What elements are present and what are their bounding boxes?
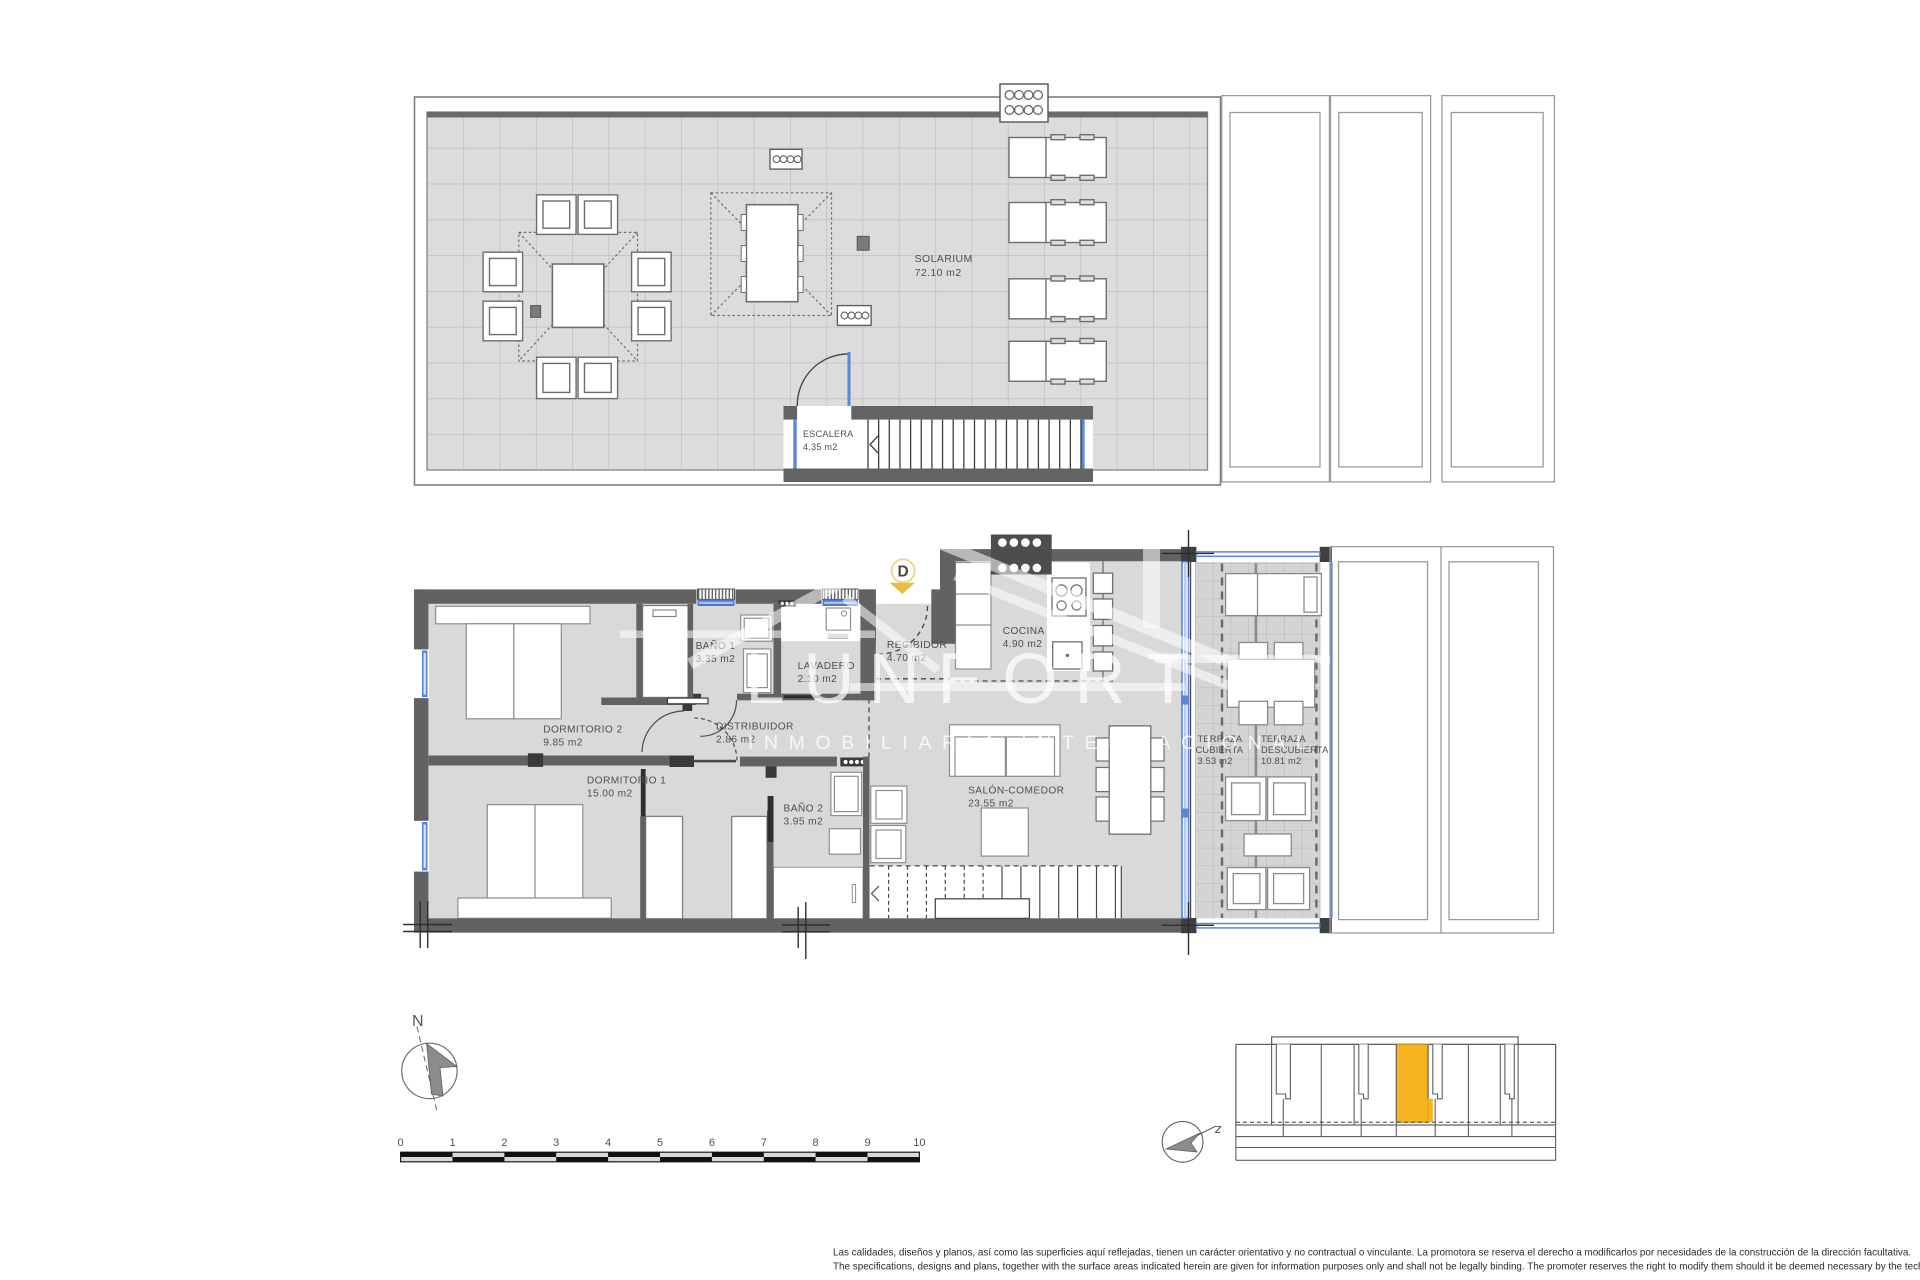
svg-text:DORMITORIO 2: DORMITORIO 2 <box>543 725 622 736</box>
svg-text:5: 5 <box>657 1137 663 1149</box>
svg-text:4: 4 <box>605 1137 611 1149</box>
svg-text:COCINA: COCINA <box>1003 626 1045 637</box>
svg-text:SALÓN-COMEDOR: SALÓN-COMEDOR <box>968 784 1064 797</box>
svg-text:U: U <box>803 640 854 719</box>
svg-text:D: D <box>897 563 908 580</box>
svg-text:2: 2 <box>501 1137 507 1149</box>
svg-text:23.55 m2: 23.55 m2 <box>968 799 1014 810</box>
svg-text:DORMITORIO 1: DORMITORIO 1 <box>587 776 666 787</box>
svg-text:R: R <box>1074 640 1125 719</box>
svg-text:72.10 m2: 72.10 m2 <box>915 267 962 279</box>
svg-text:7: 7 <box>761 1137 767 1149</box>
svg-text:z: z <box>1214 1121 1222 1136</box>
svg-text:T: T <box>1146 640 1189 719</box>
svg-text:O: O <box>1002 640 1057 719</box>
svg-text:9.85 m2: 9.85 m2 <box>543 738 583 749</box>
svg-text:0: 0 <box>398 1137 404 1149</box>
svg-text:4.35 m2: 4.35 m2 <box>803 442 838 452</box>
svg-text:9: 9 <box>864 1137 870 1149</box>
svg-text:L: L <box>745 640 785 719</box>
svg-text:BAÑO 2: BAÑO 2 <box>784 802 824 815</box>
svg-text:N: N <box>868 640 919 719</box>
svg-text:3: 3 <box>553 1137 559 1149</box>
svg-text:6: 6 <box>709 1137 715 1149</box>
svg-text:8: 8 <box>813 1137 819 1149</box>
svg-text:The specifications, designs an: The specifications, designs and plans, t… <box>833 1262 1920 1273</box>
svg-text:ESCALERA: ESCALERA <box>803 429 853 439</box>
svg-text:INMOBILIARIA INTERNACIONAL: INMOBILIARIA INTERNACIONAL <box>748 732 1317 754</box>
svg-text:10.81 m2: 10.81 m2 <box>1261 756 1301 766</box>
svg-text:SOLARIUM: SOLARIUM <box>915 253 973 265</box>
svg-text:1: 1 <box>449 1137 455 1149</box>
svg-text:10: 10 <box>913 1137 925 1149</box>
svg-text:3.53 m2: 3.53 m2 <box>1198 756 1233 766</box>
svg-text:Las calidades, diseños y plano: Las calidades, diseños y planos, así com… <box>833 1248 1911 1259</box>
svg-text:15.00 m2: 15.00 m2 <box>587 789 633 800</box>
svg-text:DISTRIBUIDOR: DISTRIBUIDOR <box>716 722 794 733</box>
svg-text:3.95 m2: 3.95 m2 <box>784 817 824 828</box>
svg-text:F: F <box>937 640 980 719</box>
